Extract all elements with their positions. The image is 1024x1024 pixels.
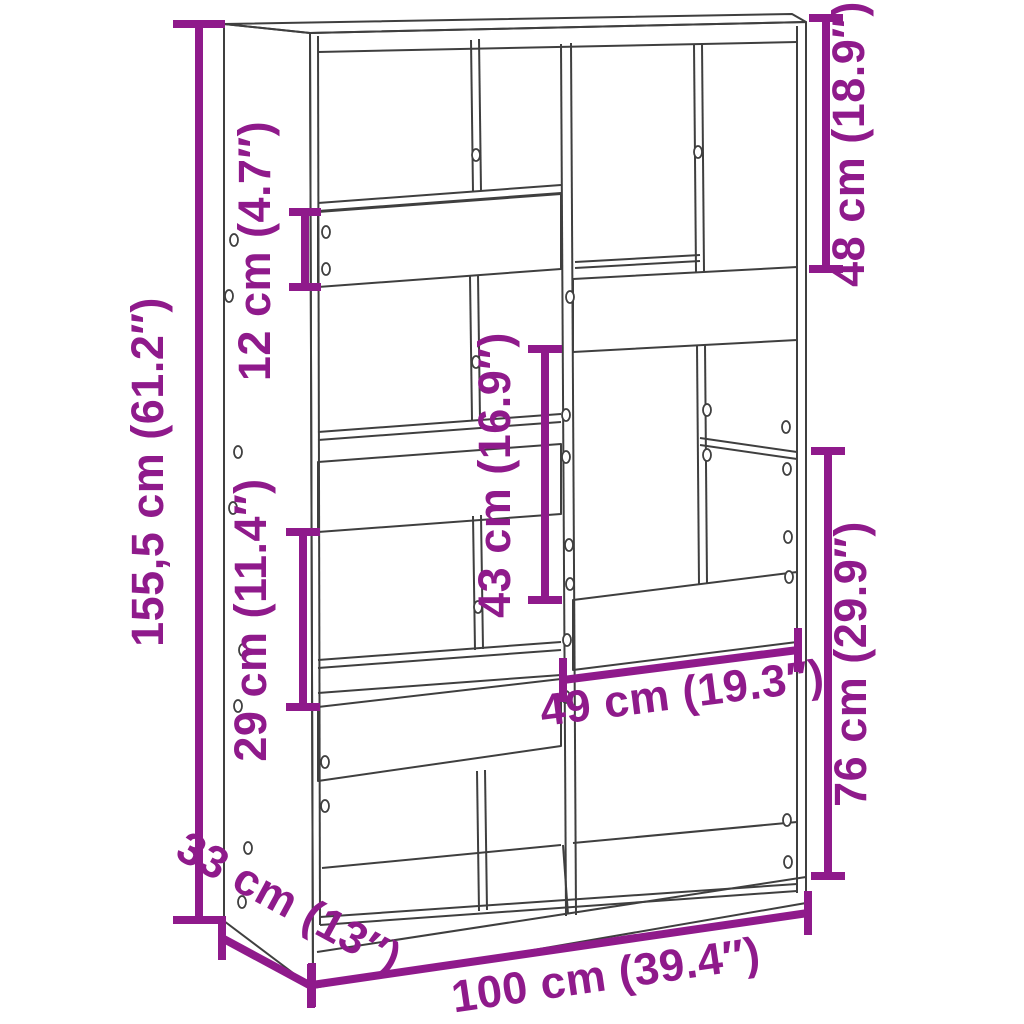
dimension-label-total-depth: 33 cm (13″) [169,821,411,984]
floor-front-edge-b [320,891,797,925]
dimension-label-48: 48 cm (18.9″) [823,1,874,287]
front-frame [310,22,806,988]
dimension-label-76: 76 cm (29.9″) [825,521,876,807]
bookcase-diagram-svg: 155,5 cm (61.2″) 12 cm (4.7″) 29 cm (11.… [0,0,1024,1024]
dimension-label-12: 12 cm (4.7″) [229,121,280,381]
right-column-shelves [573,255,797,678]
dimension-line [222,938,311,986]
dimension-shelf-band-12: 12 cm (4.7″) [229,121,321,381]
center-divider-back [571,43,576,915]
dimension-compartment-48: 48 cm (18.9″) [809,1,874,287]
right-column-dividers [694,43,707,584]
dimension-label-29: 29 cm (11.4″) [225,478,276,761]
dimension-compartment-29: 29 cm (11.4″) [225,478,320,761]
floor-back-edge-right [573,822,797,843]
floor-back-edge-left [322,845,561,868]
dimension-label-43: 43 cm (16.9″) [469,332,520,618]
dimension-compartment-43: 43 cm (16.9″) [469,332,562,618]
top-inner-edge [318,42,797,52]
dimension-total-height: 155,5 cm (61.2″) [122,24,225,920]
left-column-shelves [318,185,561,781]
product-dimension-diagram: 155,5 cm (61.2″) 12 cm (4.7″) 29 cm (11.… [0,0,1024,1024]
dimension-label-total-height: 155,5 cm (61.2″) [122,297,173,647]
